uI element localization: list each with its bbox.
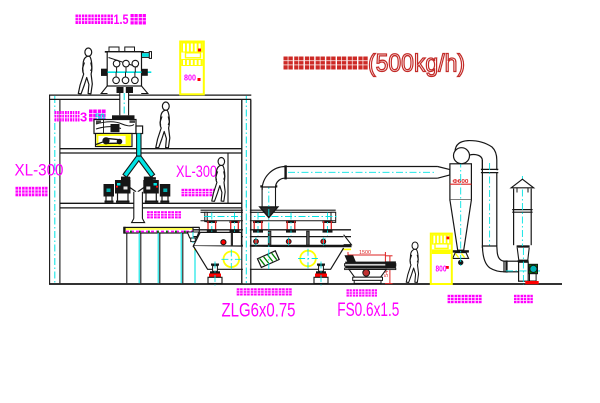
svg-text:(500kg/h): (500kg/h)	[368, 50, 465, 78]
svg-text:XL-300: XL-300	[15, 162, 64, 180]
svg-text:1.5: 1.5	[114, 12, 129, 27]
svg-text:1500: 1500	[359, 250, 371, 256]
svg-text:ZLG6x0.75: ZLG6x0.75	[222, 301, 296, 322]
svg-text:3: 3	[80, 110, 87, 125]
svg-text:800: 800	[436, 265, 447, 274]
svg-text:XL-300: XL-300	[176, 163, 217, 181]
svg-text:FS0.6x1.5: FS0.6x1.5	[337, 300, 399, 321]
svg-text:800: 800	[184, 73, 196, 83]
